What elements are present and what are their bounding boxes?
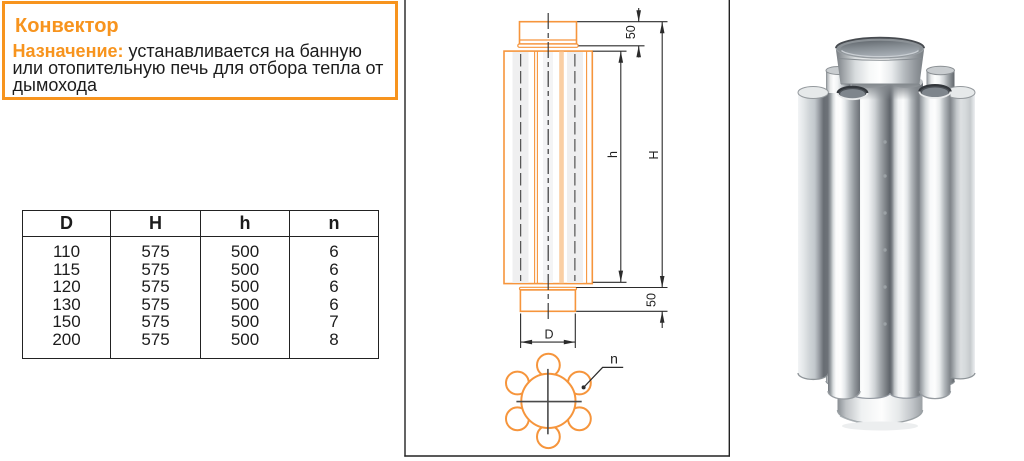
svg-text:H: H: [647, 150, 661, 159]
svg-text:h: h: [606, 151, 620, 158]
svg-text:50: 50: [644, 293, 658, 307]
svg-text:n: n: [610, 351, 618, 367]
svg-text:50: 50: [624, 25, 638, 39]
svg-text:D: D: [544, 328, 553, 342]
